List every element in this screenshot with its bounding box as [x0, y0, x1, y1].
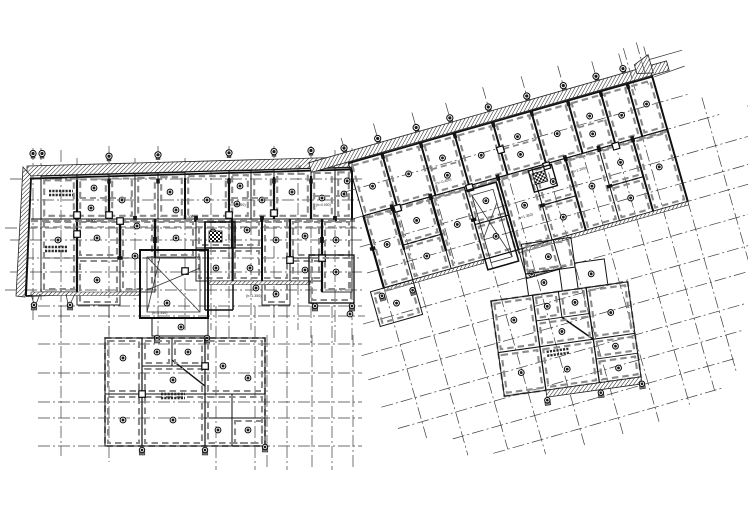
svg-text:10.300: 10.300 — [183, 215, 193, 219]
svg-text:(h=1.350): (h=1.350) — [246, 294, 261, 298]
svg-text:150: 150 — [296, 165, 302, 169]
svg-text:(h=0.000): (h=0.000) — [316, 203, 331, 207]
svg-text:(h=1.350): (h=1.350) — [152, 311, 167, 315]
svg-text:10.300: 10.300 — [86, 219, 96, 223]
svg-text:(h=-0.400): (h=-0.400) — [228, 203, 246, 207]
